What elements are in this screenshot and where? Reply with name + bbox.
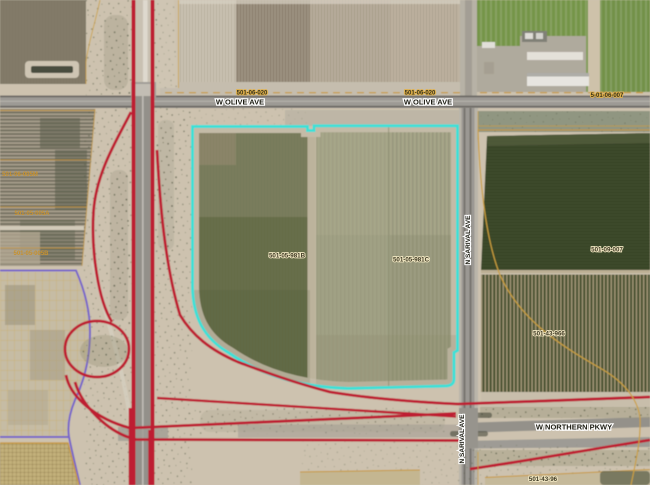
- svg-text:W OLIVE AVE: W OLIVE AVE: [404, 98, 452, 107]
- svg-text:501-43-966: 501-43-966: [533, 331, 565, 338]
- svg-text:W NORTHERN PKWY: W NORTHERN PKWY: [536, 423, 612, 432]
- svg-text:501-05-981B: 501-05-981B: [269, 253, 306, 260]
- svg-text:5-01-06-007: 5-01-06-007: [591, 93, 624, 99]
- svg-text:W OLIVE AVE: W OLIVE AVE: [216, 98, 264, 107]
- svg-text:501-06-005M: 501-06-005M: [2, 172, 38, 178]
- svg-text:N SARIVAL AVE: N SARIVAL AVE: [465, 215, 472, 265]
- svg-text:N SARIVAL AVE: N SARIVAL AVE: [459, 414, 466, 464]
- svg-text:501-05-981C: 501-05-981C: [393, 257, 430, 264]
- svg-text:501-09-007: 501-09-007: [591, 247, 623, 254]
- svg-text:501-06-020: 501-06-020: [237, 91, 268, 97]
- svg-text:501-43-96: 501-43-96: [529, 476, 558, 483]
- svg-text:501-05-005A: 501-05-005A: [14, 211, 50, 217]
- svg-text:501-06-020: 501-06-020: [405, 91, 436, 97]
- svg-text:501-05-005B: 501-05-005B: [13, 251, 49, 257]
